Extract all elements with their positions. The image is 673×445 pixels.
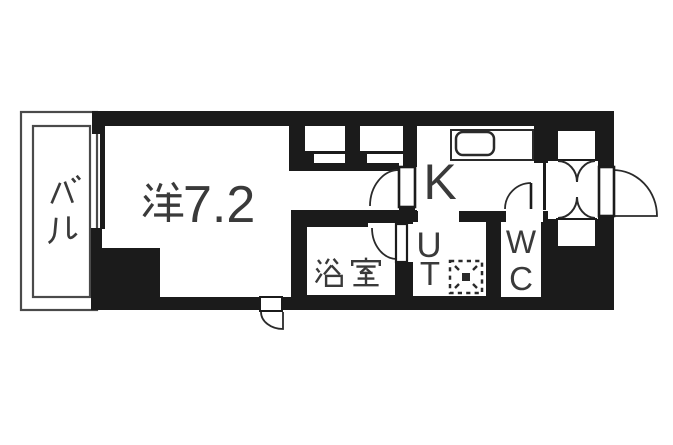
svg-text:K: K xyxy=(423,154,456,210)
svg-text:C: C xyxy=(509,260,533,297)
svg-text:7.2: 7.2 xyxy=(183,176,255,234)
svg-text:T: T xyxy=(420,255,440,292)
svg-text:W: W xyxy=(506,224,537,260)
